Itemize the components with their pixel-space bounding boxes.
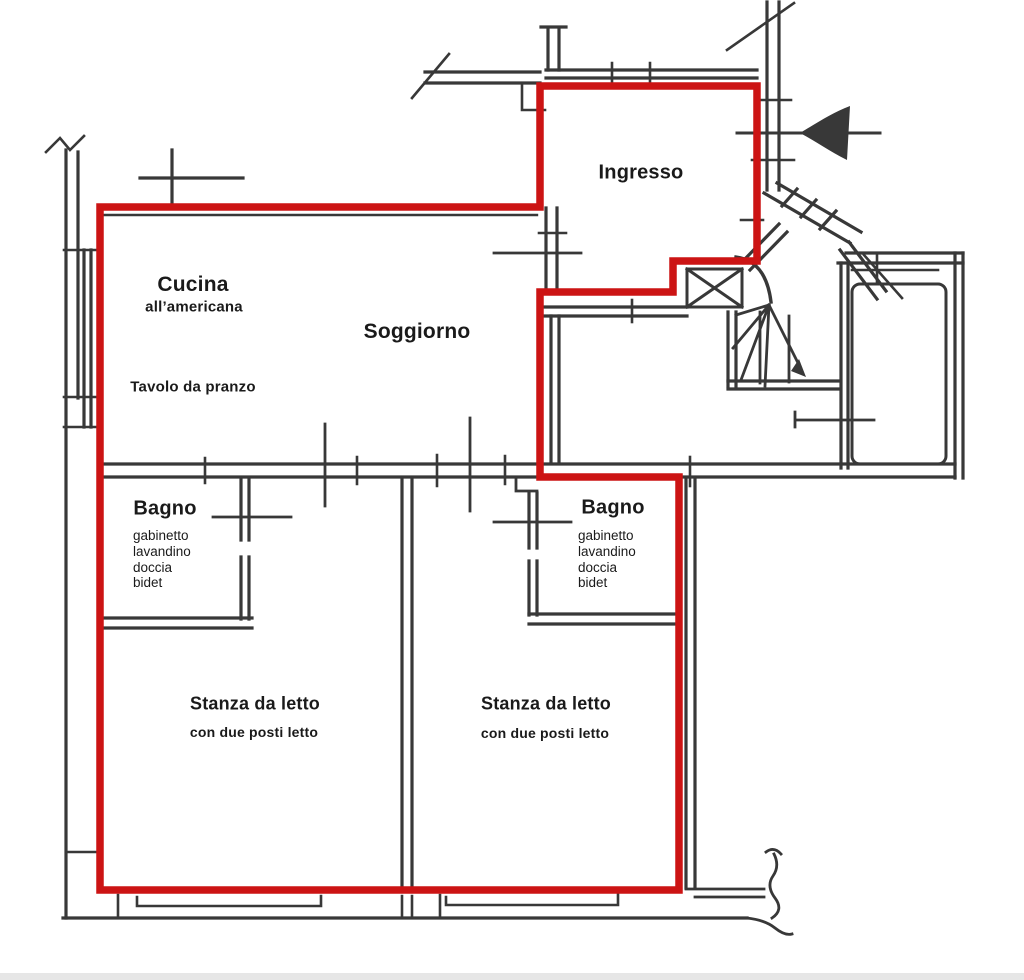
room-label-soggiorno: Soggiorno — [364, 320, 471, 344]
stair-direction-line — [769, 305, 801, 369]
room-label-stanza-right: Stanza da letto — [481, 694, 611, 715]
exterior-wall-left — [46, 136, 243, 918]
room-sublabel-cucina: all’americana — [145, 299, 243, 316]
bagno-left-feature: bidet — [133, 575, 191, 591]
room-label-cucina: Cucina — [157, 273, 228, 297]
bagno-right-feature: lavandino — [578, 544, 636, 560]
wall-soggiorno-ingresso — [494, 208, 581, 292]
room-sublabel-stanza-left: con due posti letto — [190, 724, 318, 740]
apartment-outline-red — [100, 86, 757, 890]
winder-treads — [733, 305, 789, 386]
room-label-bagno-left: Bagno — [133, 498, 196, 521]
bagno-left-feature: doccia — [133, 560, 191, 576]
scan-edge-strip — [0, 973, 1024, 980]
bagno-left-feature-list: gabinetto lavandino doccia bidet — [133, 528, 191, 591]
elevator-shaft-box — [687, 269, 742, 307]
bagno-right-feature: bidet — [578, 575, 636, 591]
neighbor-wall-right — [686, 480, 764, 897]
floor-plan: Ingresso Cucina all’americana Soggiorno … — [0, 0, 1024, 980]
room-label-bagno-right: Bagno — [581, 497, 644, 520]
room-sublabel-stanza-right: con due posti letto — [481, 725, 609, 741]
exterior-wall-top — [104, 2, 794, 220]
bagno-left-feature: lavandino — [133, 544, 191, 560]
stair-direction-arrowhead — [791, 359, 806, 377]
window-sill-left — [118, 895, 321, 917]
room-label-tavolo-da-pranzo: Tavolo da pranzo — [130, 379, 255, 396]
bagno-left-feature: gabinetto — [133, 528, 191, 544]
bagno-right-feature: gabinetto — [578, 528, 636, 544]
floor-plan-svg — [0, 0, 1024, 980]
right-room-walls — [795, 253, 963, 478]
bagno-right-feature: doccia — [578, 560, 636, 576]
room-label-stanza-left: Stanza da letto — [190, 694, 320, 715]
right-room-door-line — [795, 412, 874, 427]
room-label-ingresso: Ingresso — [599, 162, 684, 185]
bedroom-divider-wall — [402, 478, 412, 917]
bagno-right-feature-list: gabinetto lavandino doccia bidet — [578, 528, 636, 591]
window-sill-right — [440, 894, 618, 917]
